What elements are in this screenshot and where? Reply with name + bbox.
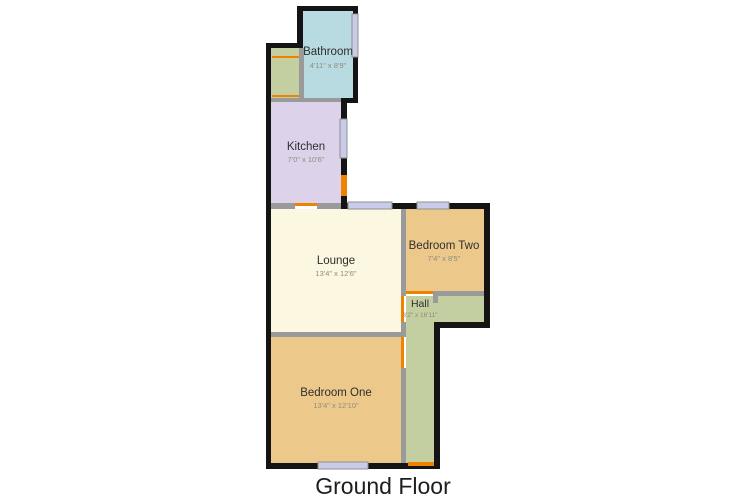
floor-title: Ground Floor	[315, 473, 451, 499]
bathroom-label: Bathroom	[303, 46, 353, 58]
wall-kitchen-lounge-right	[317, 203, 341, 209]
door-bedroom-two-hall	[406, 291, 433, 294]
wall-hall-right	[434, 322, 440, 469]
wall-lounge-bedroom-two-divider	[401, 209, 406, 296]
hall-dimensions: 3'2" x 16'11"	[402, 312, 438, 319]
wall-left	[266, 43, 271, 469]
bedroom-two-label: Bedroom Two	[409, 240, 480, 252]
door-bedroom-one-hall	[401, 337, 404, 368]
door-landing-kitchen	[272, 95, 299, 97]
wall-landing-top	[266, 43, 303, 48]
hall-landing-floor	[271, 48, 299, 98]
floorplan-page: Bathroom 4'11" x 8'9" Kitchen 7'0" x 10'…	[0, 0, 750, 500]
door-kitchen-lounge	[295, 203, 317, 206]
bedroom-two-dimensions: 7'4" x 8'5"	[428, 254, 461, 263]
window-lounge	[348, 202, 392, 209]
lounge-label: Lounge	[317, 255, 355, 267]
hall-label: Hall	[411, 298, 429, 310]
wall-bedroom-two-hall-divider	[433, 291, 484, 296]
wall-kitchen-lounge-left	[271, 203, 295, 209]
window-kitchen	[340, 119, 347, 158]
lounge-dimensions: 13'4" x 12'6"	[315, 269, 356, 278]
bedroom-one-floor	[271, 337, 401, 463]
wall-kitchen-top-divider	[271, 98, 341, 102]
wall-bedroom-one-hall-divider	[401, 368, 406, 463]
window-bedroom-two	[417, 202, 449, 209]
door-landing-top	[272, 56, 299, 58]
kitchen-dimensions: 7'0" x 10'6"	[288, 155, 325, 164]
kitchen-label: Kitchen	[287, 141, 325, 153]
wall-bathroom-top	[297, 6, 358, 11]
wall-lounge-right-stub	[401, 322, 406, 337]
bathroom-dimensions: 4'11" x 8'9"	[310, 61, 347, 70]
bedroom-one-dimensions: 13'4" x 12'10"	[313, 401, 359, 410]
wall-hall-bottom-step	[434, 322, 490, 328]
wall-bedroom-two-right	[484, 203, 490, 328]
door-front-entrance	[408, 462, 434, 466]
floorplan-canvas: Bathroom 4'11" x 8'9" Kitchen 7'0" x 10'…	[0, 0, 750, 500]
bedroom-one-label: Bedroom One	[300, 387, 372, 399]
wall-bathroom-left	[297, 6, 303, 48]
window-bedroom-one	[318, 462, 368, 469]
door-kitchen-exterior	[341, 175, 347, 196]
wall-hall-stub	[433, 296, 438, 303]
wall-lounge-bedroom-one-divider	[271, 332, 401, 337]
hall-floor-vertical	[406, 296, 434, 463]
